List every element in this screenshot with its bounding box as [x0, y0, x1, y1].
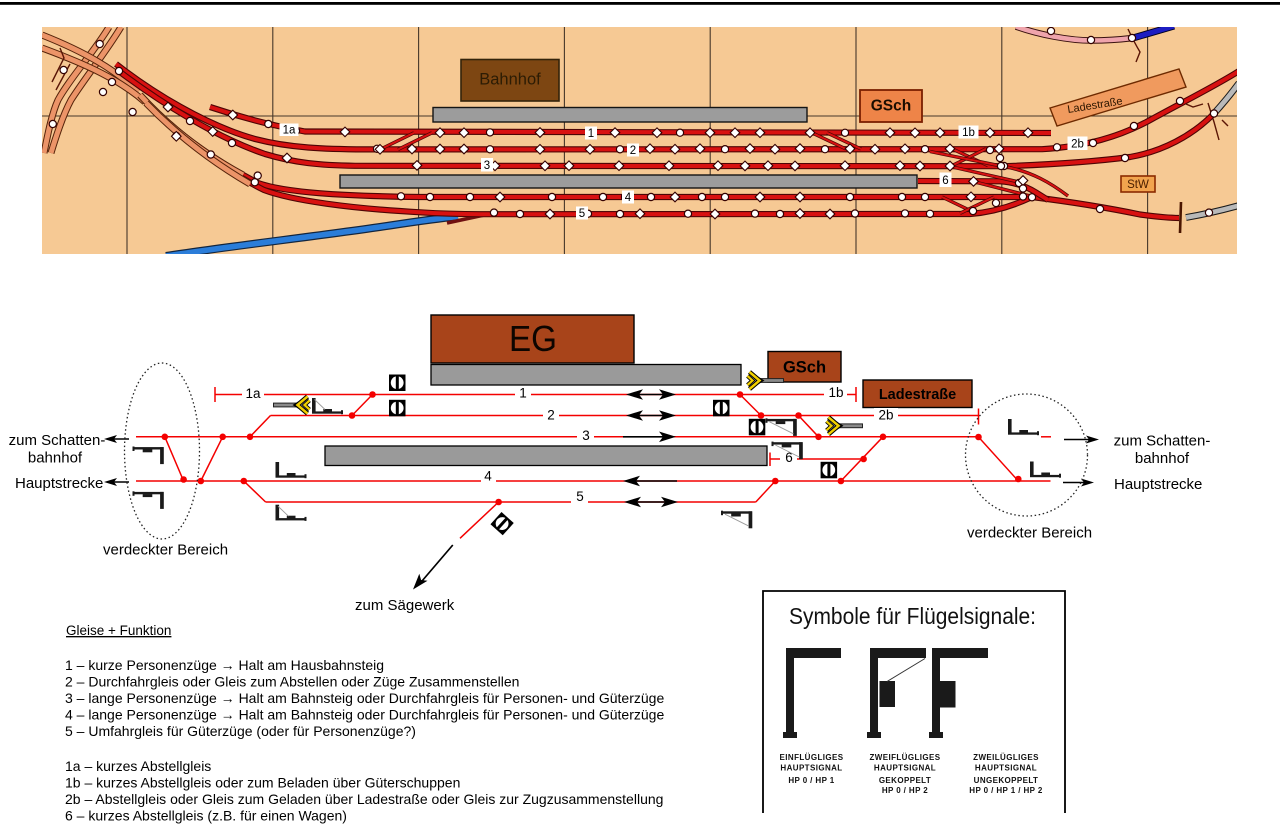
- svg-text:GEKOPPELT: GEKOPPELT: [879, 776, 931, 785]
- svg-text:HP 0 / HP 1: HP 0 / HP 1: [788, 776, 834, 785]
- svg-text:Gleise + Funktion: Gleise + Funktion: [66, 623, 171, 638]
- svg-text:EG: EG: [509, 318, 557, 359]
- svg-text:1b: 1b: [962, 127, 975, 139]
- svg-text:ZWEILÜGLIGES: ZWEILÜGLIGES: [973, 753, 1039, 762]
- svg-text:UNGEKOPPELT: UNGEKOPPELT: [974, 776, 1039, 785]
- svg-text:6 – kurzes Abstellgleis (z.B.: 6 – kurzes Abstellgleis (z.B. für einen …: [65, 808, 347, 824]
- svg-text:2: 2: [547, 408, 555, 423]
- svg-text:zum Schatten-: zum Schatten-: [1114, 433, 1211, 450]
- svg-text:1a: 1a: [245, 386, 261, 401]
- svg-text:5: 5: [576, 489, 584, 504]
- svg-text:verdeckter Bereich: verdeckter Bereich: [967, 525, 1092, 542]
- svg-text:2b: 2b: [1071, 138, 1084, 150]
- svg-text:zum Schatten-: zum Schatten-: [9, 432, 106, 449]
- svg-text:zum Sägewerk: zum Sägewerk: [355, 597, 455, 614]
- svg-text:EINFLÜGLIGES: EINFLÜGLIGES: [780, 753, 844, 762]
- svg-text:2b: 2b: [878, 408, 893, 423]
- svg-text:GSch: GSch: [871, 98, 911, 115]
- svg-text:verdeckter Bereich: verdeckter Bereich: [103, 542, 228, 559]
- svg-text:GSch: GSch: [783, 359, 826, 377]
- svg-text:ZWEIFLÜGLIGES: ZWEIFLÜGLIGES: [870, 753, 941, 762]
- svg-text:3: 3: [582, 428, 590, 443]
- svg-text:HAUPTSIGNAL: HAUPTSIGNAL: [780, 764, 842, 773]
- svg-text:bahnhof: bahnhof: [28, 450, 83, 467]
- svg-text:1: 1: [519, 386, 527, 401]
- svg-text:Ladestraße: Ladestraße: [879, 387, 956, 403]
- svg-text:HAUPTSIGNAL: HAUPTSIGNAL: [874, 764, 936, 773]
- svg-text:HAUPTSIGNAL: HAUPTSIGNAL: [975, 764, 1037, 773]
- svg-text:4: 4: [484, 468, 492, 483]
- svg-text:3: 3: [484, 160, 490, 172]
- svg-text:1: 1: [588, 128, 594, 140]
- svg-text:5 – Umfahrgleis für Güterzüge: 5 – Umfahrgleis für Güterzüge (oder für …: [65, 723, 416, 739]
- svg-text:5: 5: [579, 208, 585, 220]
- svg-text:1b: 1b: [828, 385, 843, 400]
- svg-text:HP 0 / HP 2: HP 0 / HP 2: [882, 786, 928, 795]
- svg-text:HP 0 / HP 1 / HP 2: HP 0 / HP 1 / HP 2: [969, 786, 1043, 795]
- svg-text:bahnhof: bahnhof: [1135, 450, 1190, 467]
- svg-text:Hauptstrecke: Hauptstrecke: [1114, 476, 1202, 493]
- svg-text:4: 4: [625, 192, 632, 204]
- svg-text:2 – Durchfahrgleis oder Gleis: 2 – Durchfahrgleis oder Gleis zum Abstel…: [65, 674, 519, 690]
- svg-text:Hauptstrecke: Hauptstrecke: [15, 475, 103, 492]
- svg-text:1a – kurzes Abstellgleis: 1a – kurzes Abstellgleis: [65, 758, 211, 774]
- svg-text:1a: 1a: [283, 125, 296, 137]
- svg-text:StW: StW: [1127, 179, 1149, 191]
- svg-text:1 – kurze Personenzüge → Halt: 1 – kurze Personenzüge → Halt am Hausbah…: [65, 657, 384, 673]
- svg-text:2b – Abstellgleis oder Gleis z: 2b – Abstellgleis oder Gleis zum Geladen…: [65, 791, 663, 807]
- svg-text:4 – lange Personenzüge → Halt: 4 – lange Personenzüge → Halt am Bahnste…: [65, 707, 664, 723]
- svg-text:Symbole für Flügelsignale:: Symbole für Flügelsignale:: [789, 603, 1036, 629]
- svg-text:Bahnhof: Bahnhof: [479, 70, 541, 88]
- svg-text:1b – kurzes Abstellgleis oder: 1b – kurzes Abstellgleis oder zum Belade…: [65, 775, 460, 791]
- svg-text:2: 2: [630, 145, 636, 157]
- svg-text:3 – lange Personenzüge → Halt: 3 – lange Personenzüge → Halt am Bahnste…: [65, 690, 664, 706]
- svg-text:6: 6: [942, 175, 948, 187]
